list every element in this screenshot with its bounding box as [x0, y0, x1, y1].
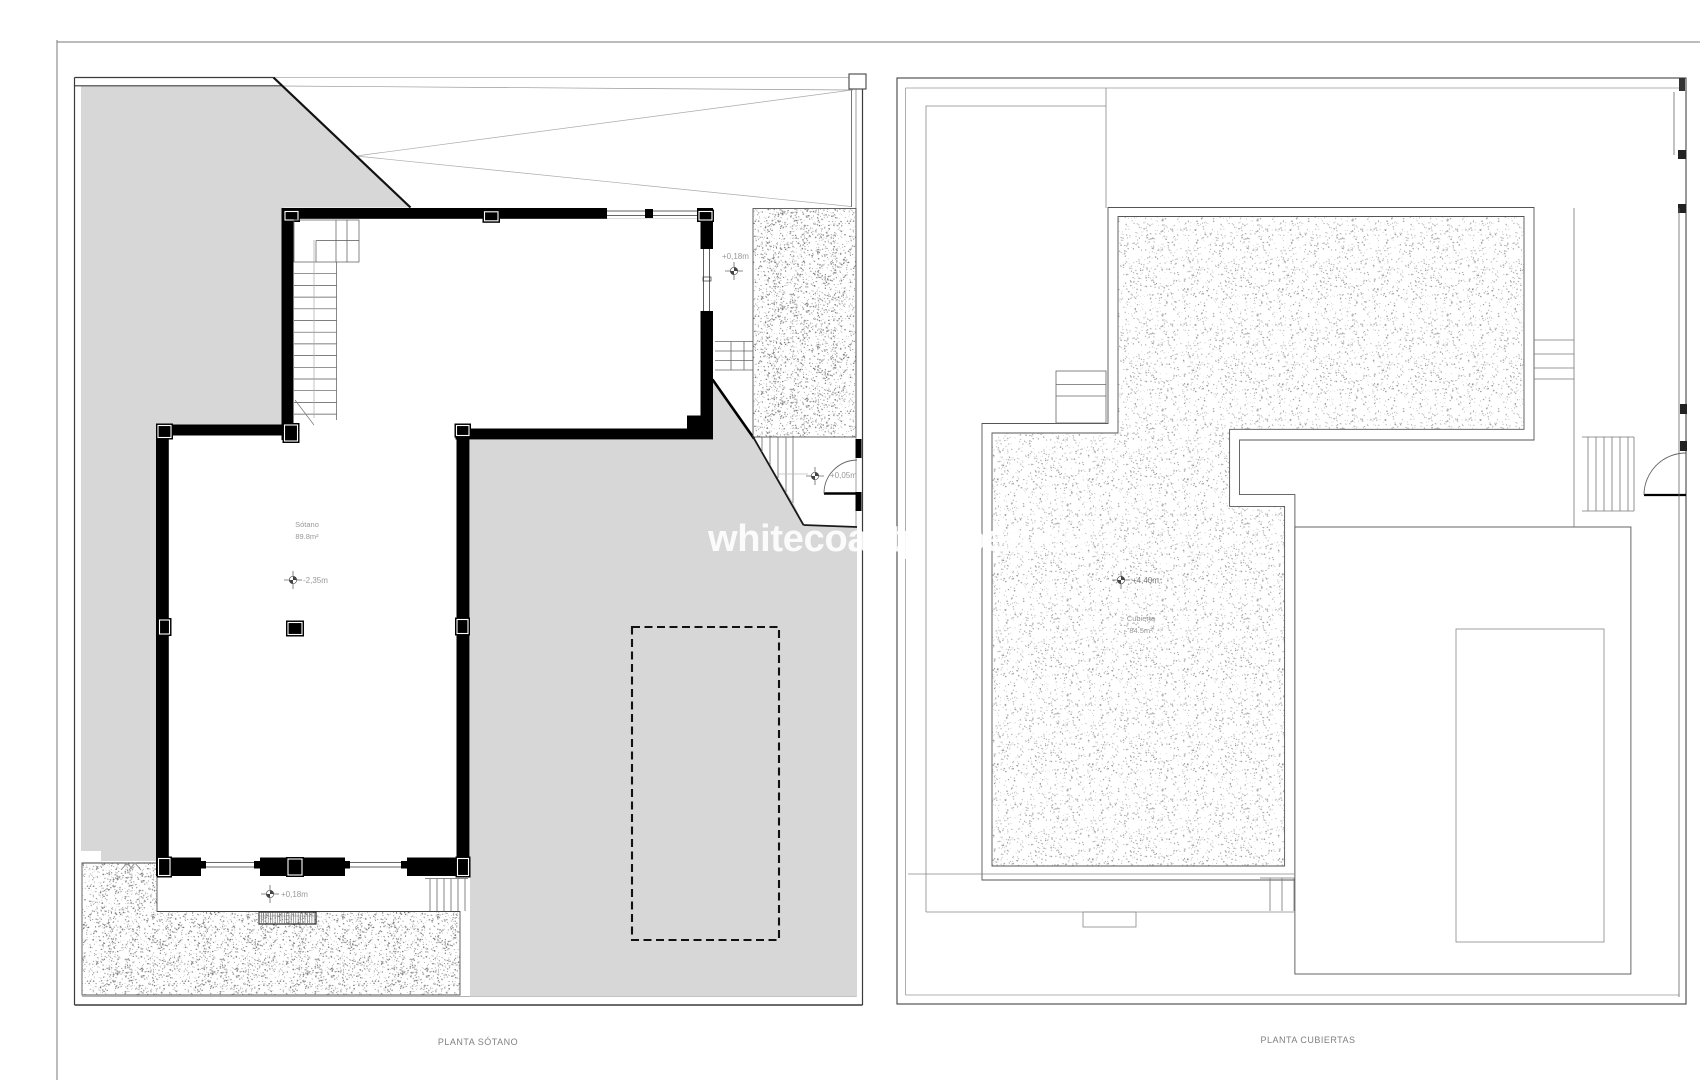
svg-text:+0,18m: +0,18m — [722, 252, 749, 261]
svg-text:89.8m²: 89.8m² — [295, 532, 319, 541]
svg-text:84.5m²: 84.5m² — [1129, 626, 1153, 635]
svg-text:-2,35m: -2,35m — [303, 576, 328, 585]
svg-text:Cubierta: Cubierta — [1127, 614, 1156, 623]
svg-text:+0,05m: +0,05m — [830, 471, 857, 480]
svg-text:whitecoastproperties: whitecoastproperties — [707, 518, 1084, 560]
svg-text:+4,40m: +4,40m — [1132, 576, 1159, 585]
svg-text:Sótano: Sótano — [295, 520, 319, 529]
svg-text:PLANTA CUBIERTAS: PLANTA CUBIERTAS — [1260, 1035, 1355, 1045]
svg-text:+0,18m: +0,18m — [281, 890, 308, 899]
svg-text:PLANTA SÓTANO: PLANTA SÓTANO — [438, 1037, 518, 1047]
